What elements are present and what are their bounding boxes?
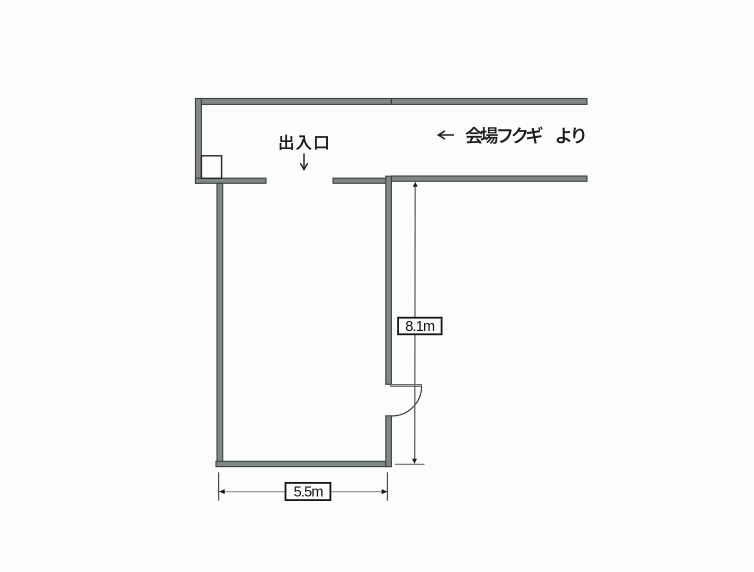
svg-text:5.5m: 5.5m xyxy=(294,485,324,501)
svg-text:8.1m: 8.1m xyxy=(405,319,435,335)
